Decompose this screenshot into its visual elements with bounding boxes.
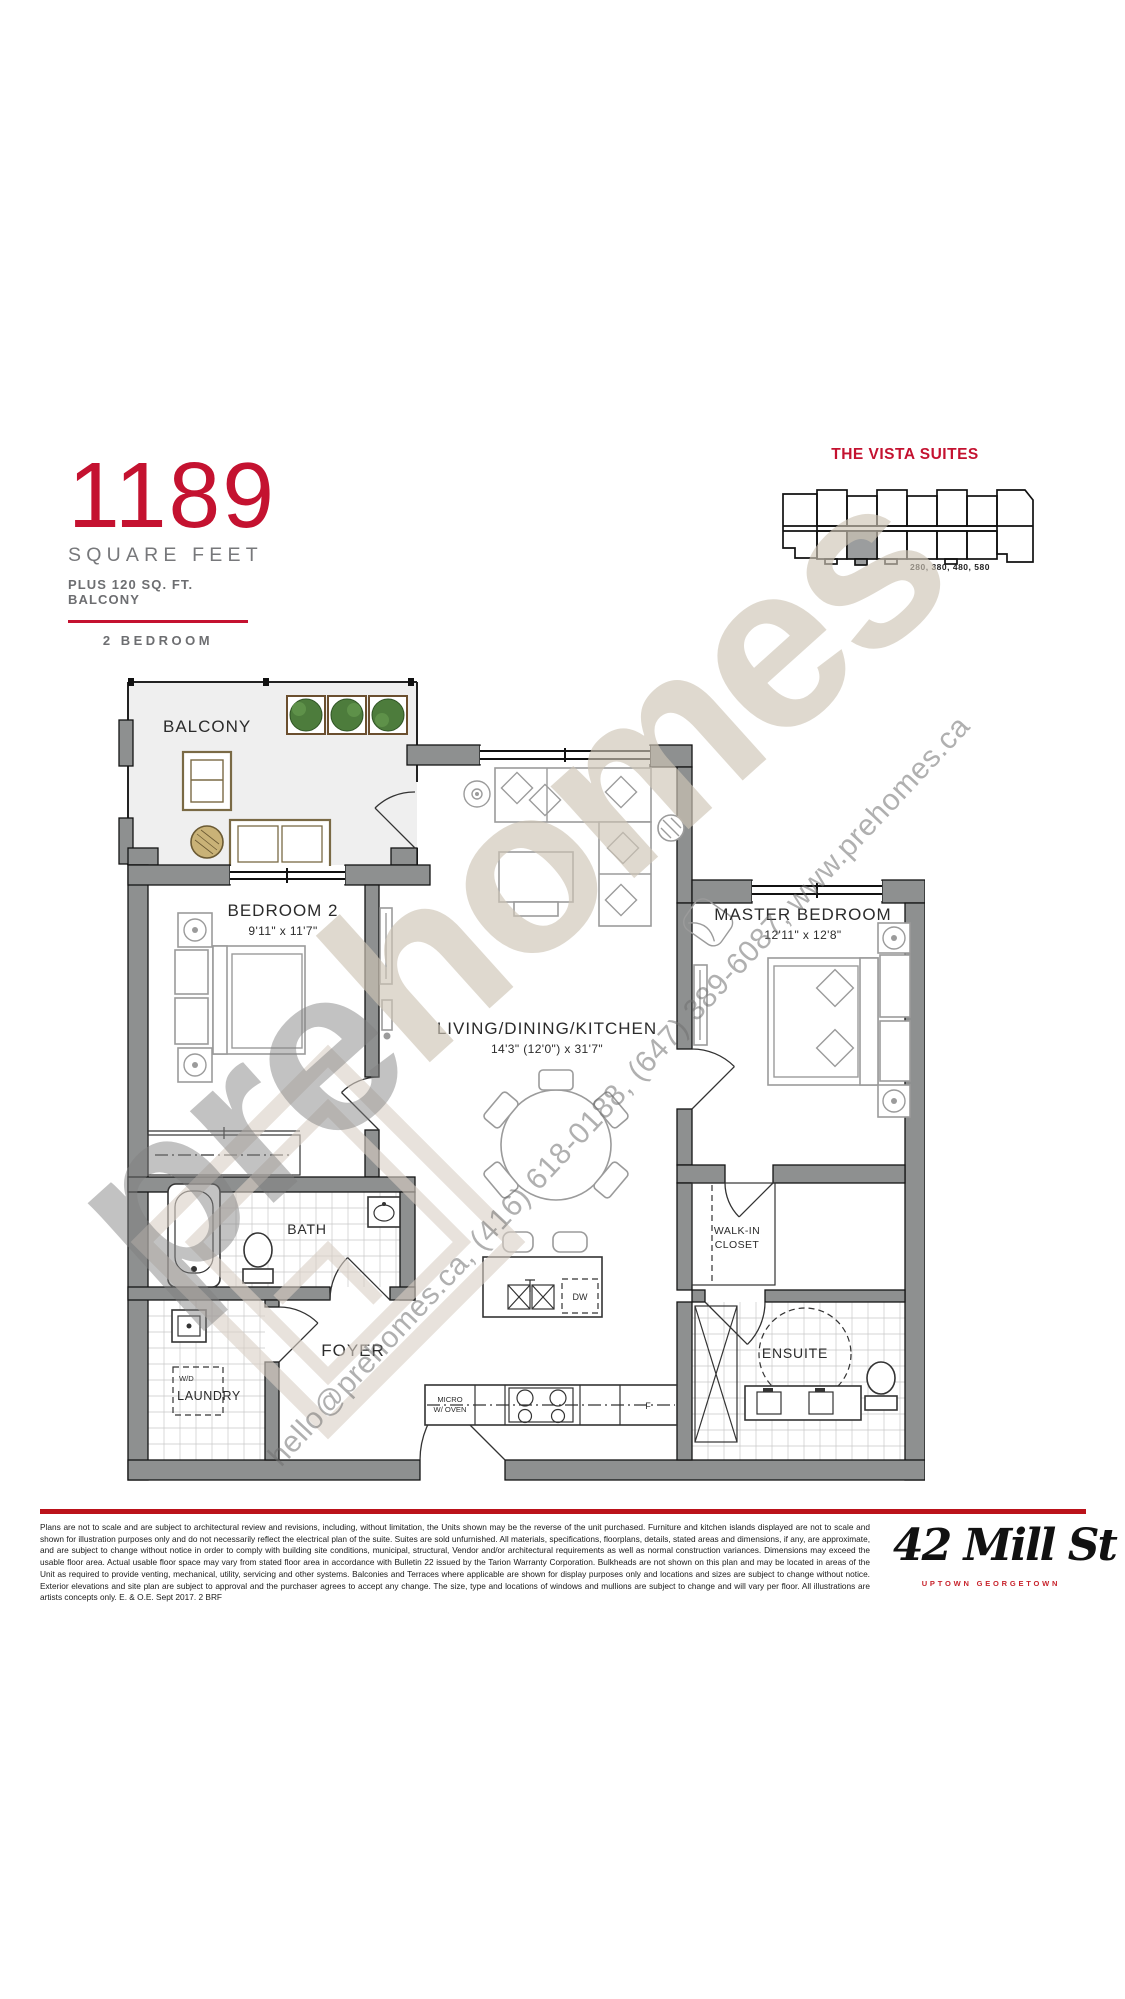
- keyplan-highlighted-unit: [847, 531, 877, 559]
- master-window: [752, 881, 882, 901]
- ensuite: ENSUITE: [695, 1302, 897, 1442]
- living-label: LIVING/DINING/KITCHEN: [437, 1019, 657, 1038]
- floor-lamp-icon: [464, 781, 490, 807]
- bedroom2-dim: 9'11" x 11'7": [248, 924, 317, 938]
- footer-red-divider: [40, 1509, 1086, 1514]
- double-vanity-icon: [745, 1386, 861, 1420]
- balcony-chair: [183, 752, 231, 810]
- bath-sink-icon: [368, 1197, 400, 1227]
- dining-table: [482, 1070, 629, 1200]
- living-window: [480, 746, 650, 764]
- disclaimer-text: Plans are not to scale and are subject t…: [40, 1522, 870, 1604]
- keyplan-title: THE VISTA SUITES: [765, 446, 1045, 464]
- dishwasher-label: DW: [573, 1292, 588, 1302]
- balcony-pier: [119, 720, 133, 766]
- bedroom-2: BEDROOM 2 9'11" x 11'7": [148, 901, 392, 1175]
- closet: [148, 1127, 300, 1175]
- laundry-label: LAUNDRY: [177, 1389, 241, 1403]
- microwave-label-1: MICRO: [437, 1395, 462, 1404]
- side-table: [658, 815, 684, 841]
- microwave-label-2: W/ OVEN: [434, 1405, 467, 1414]
- washer-dryer-label: W/D: [179, 1374, 194, 1383]
- living-dim: 14'3" (12'0") x 31'7": [491, 1042, 603, 1056]
- developer-logo-name: 42 Mill St: [893, 1520, 1089, 1571]
- stool: [503, 1232, 533, 1252]
- linen-closet: [695, 1306, 737, 1442]
- balcony-pier: [391, 848, 417, 865]
- walkin-label-2: CLOSET: [715, 1239, 760, 1251]
- coffee-table: [499, 852, 573, 916]
- bedroom2-window: [230, 866, 345, 884]
- kitchen-island: DW: [483, 1232, 602, 1317]
- bed: [213, 946, 305, 1054]
- bathtub-icon: [168, 1184, 220, 1287]
- master-bedroom: MASTER BEDROOM 12'11" x 12'8": [680, 895, 910, 1117]
- nightstand: [175, 913, 212, 1082]
- bedroom2-door: [342, 1077, 380, 1130]
- balcony-pier: [128, 848, 158, 865]
- keyplan-unit-numbers: 280, 380, 480, 580: [880, 562, 1020, 572]
- walk-in-closet: WALK-IN CLOSET: [692, 1183, 775, 1285]
- kitchen-counter: MICRO W/ OVEN F: [425, 1385, 677, 1425]
- master-label: MASTER BEDROOM: [714, 905, 891, 924]
- planter-icon: [287, 696, 407, 734]
- bath-door: [330, 1258, 390, 1300]
- laundry-room: W/D LAUNDRY: [172, 1307, 318, 1415]
- floor-plan: BALCONY: [115, 652, 925, 1487]
- fridge-label: F: [645, 1401, 651, 1411]
- walkin-label-1: WALK-IN: [714, 1225, 760, 1237]
- ensuite-label: ENSUITE: [762, 1345, 828, 1361]
- master-bed: [768, 958, 878, 1085]
- bath-label: BATH: [287, 1221, 327, 1237]
- balcony: BALCONY: [119, 678, 417, 870]
- master-dim: 12'11" x 12'8": [764, 928, 841, 942]
- keyplan-highlighted-unit-tab: [855, 559, 867, 565]
- tv-console: [380, 908, 392, 1040]
- balcony-loveseat: [230, 820, 330, 870]
- area-header: 1189 SQUARE FEET PLUS 120 SQ. FT. BALCON…: [68, 455, 268, 648]
- unit-type-label: 2 BEDROOM: [68, 633, 248, 648]
- foyer-label: FOYER: [321, 1341, 385, 1360]
- master-tv-console: [694, 965, 707, 1045]
- balcony-table: [191, 826, 223, 858]
- bedroom2-label: BEDROOM 2: [227, 901, 338, 920]
- balcony-area-label: PLUS 120 SQ. FT. BALCONY: [68, 577, 268, 607]
- stool: [553, 1232, 587, 1252]
- laundry-sink-icon: [172, 1310, 206, 1342]
- toilet-icon: [243, 1233, 273, 1283]
- walkin-door: [725, 1183, 773, 1217]
- developer-logo: 42 Mill St UPTOWN GEORGETOWN: [893, 1520, 1089, 1588]
- keyplan-building: [773, 474, 1045, 569]
- balcony-label: BALCONY: [163, 717, 251, 736]
- area-label: SQUARE FEET: [68, 544, 268, 567]
- ensuite-toilet-icon: [865, 1362, 897, 1410]
- laundry-door: [279, 1307, 318, 1362]
- living-dining-kitchen: DW MICRO W/ OVEN F LIVING/DINING/KITCHEN…: [425, 768, 684, 1425]
- area-number: 1189: [68, 455, 268, 535]
- master-door: [692, 1049, 734, 1109]
- red-divider: [68, 620, 248, 623]
- developer-logo-tagline: UPTOWN GEORGETOWN: [893, 1579, 1089, 1588]
